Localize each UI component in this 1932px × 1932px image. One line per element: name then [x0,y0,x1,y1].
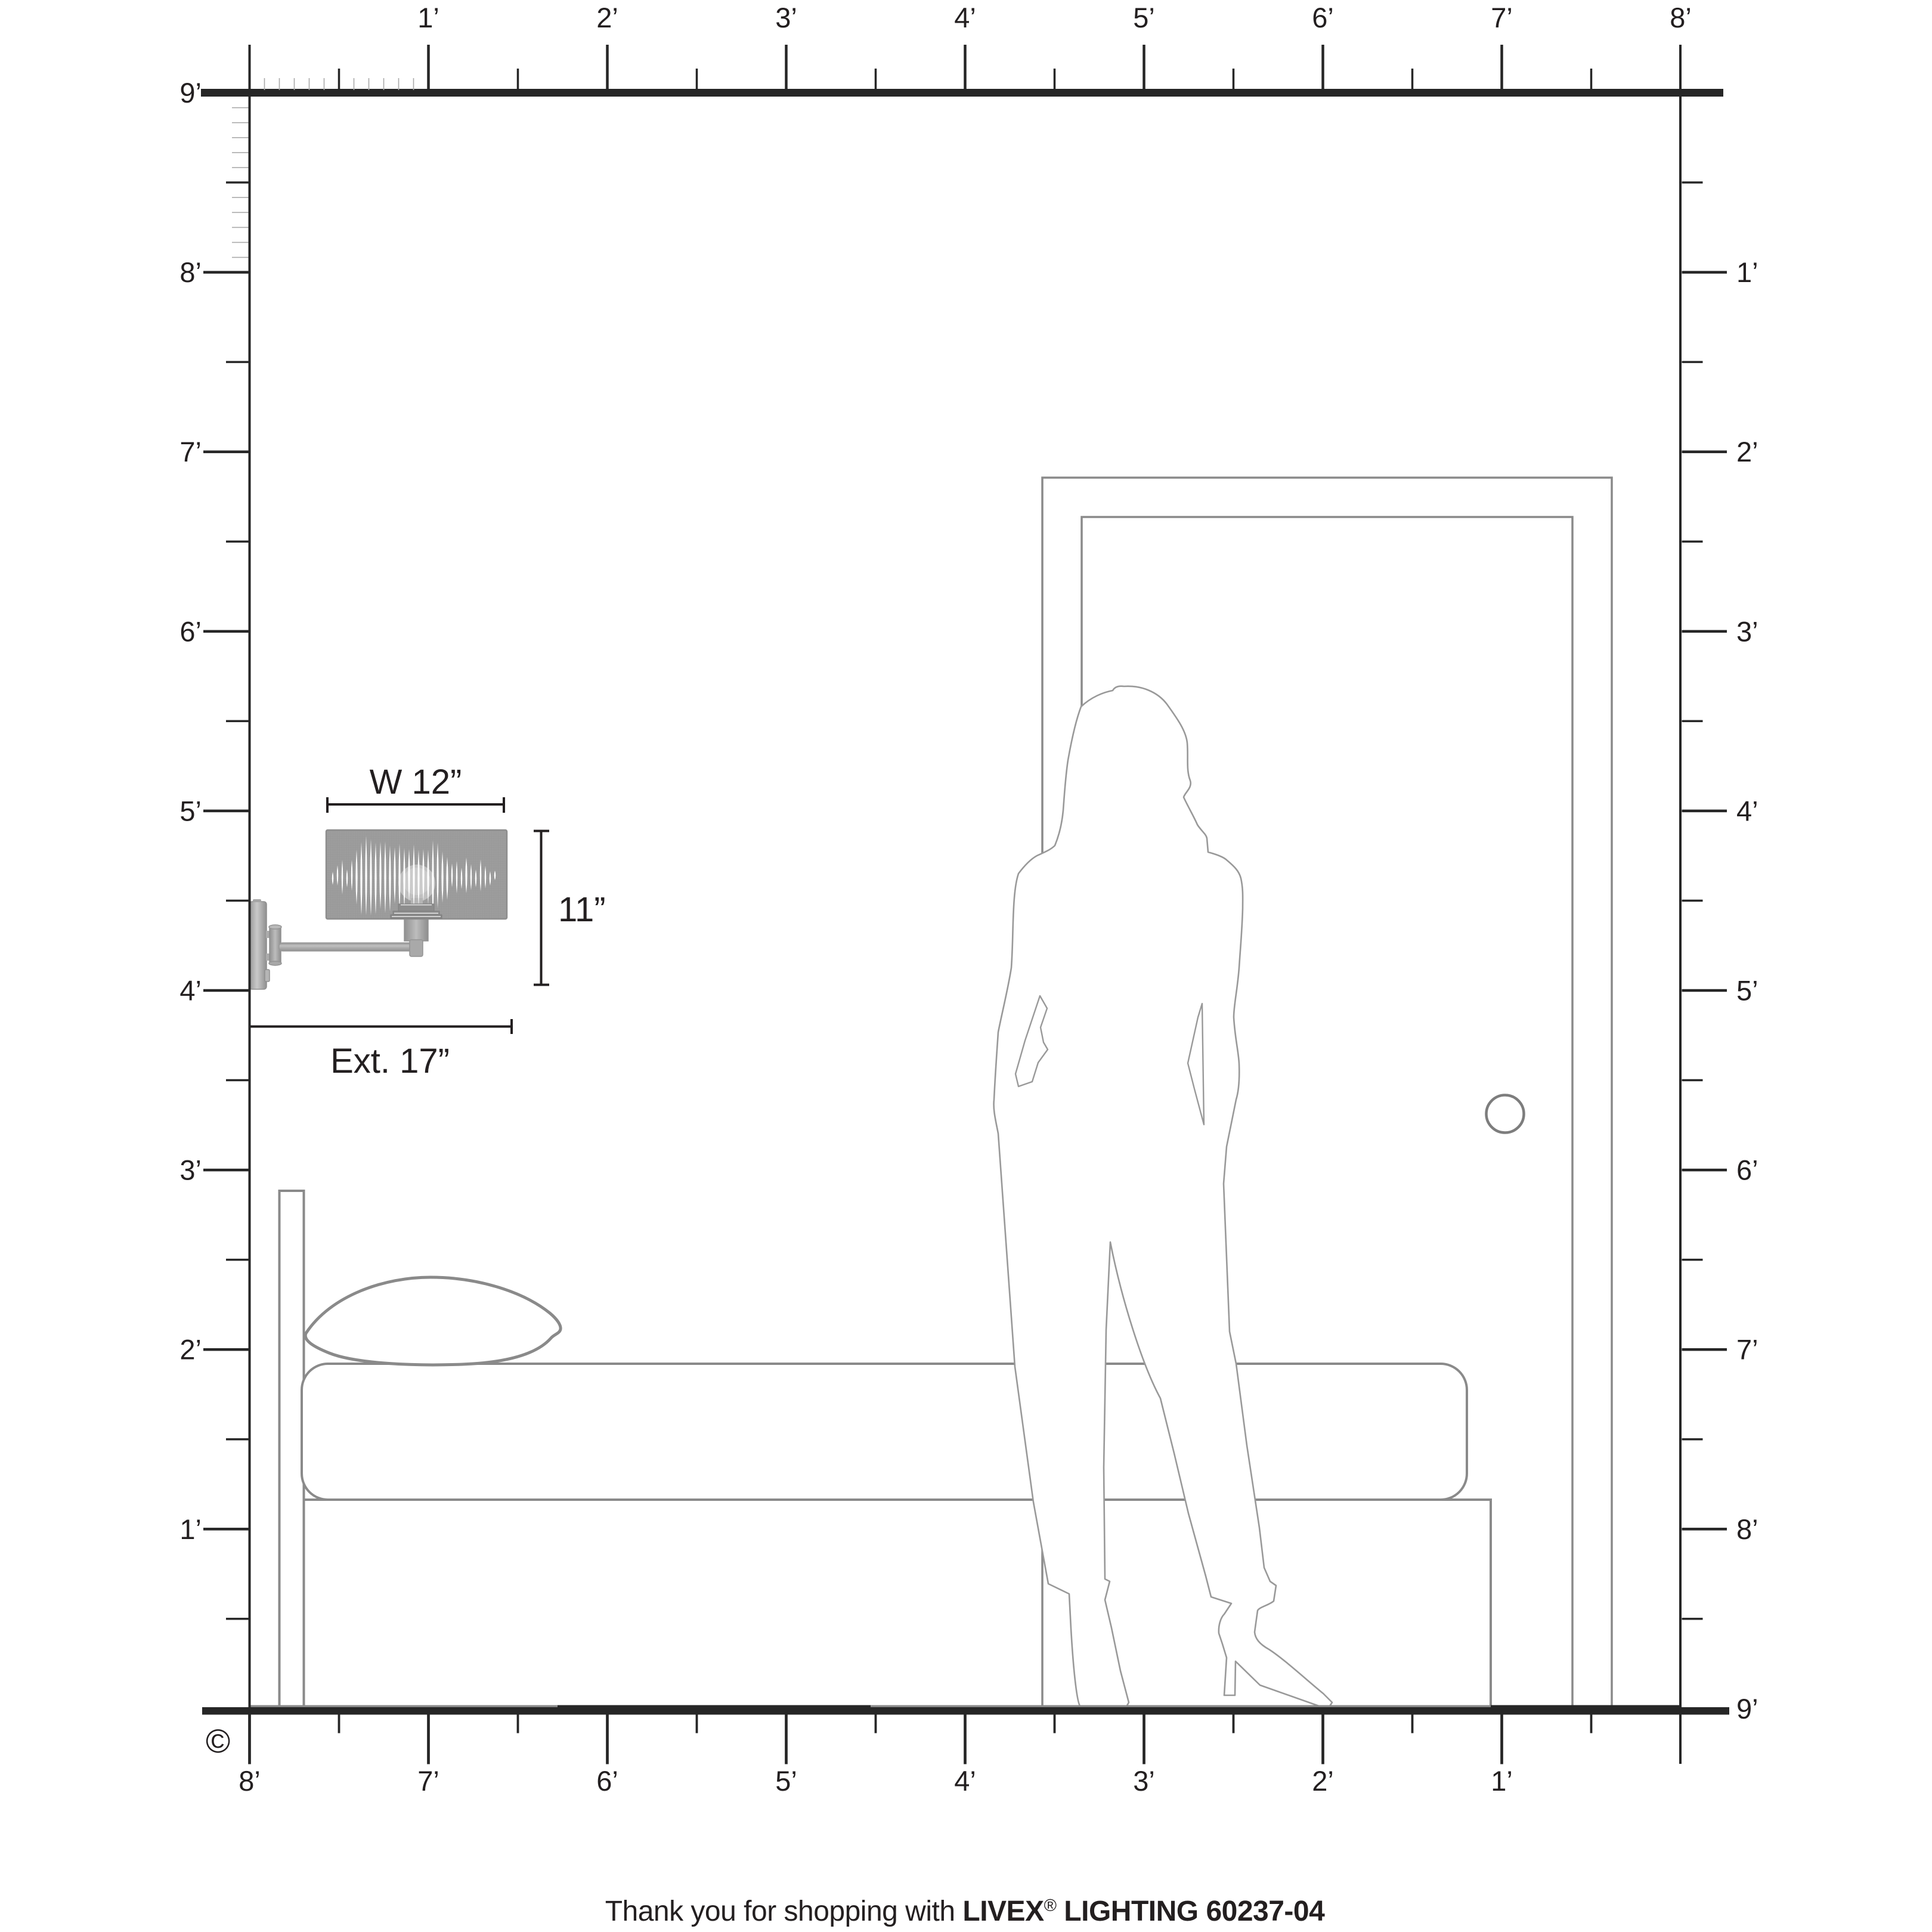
svg-text:©: © [206,1722,230,1760]
svg-text:9’: 9’ [179,77,202,109]
svg-text:Ext. 17”: Ext. 17” [330,1042,450,1080]
svg-text:4’: 4’ [1736,795,1758,826]
svg-text:W 12”: W 12” [370,763,462,801]
svg-text:5’: 5’ [775,1765,797,1797]
svg-text:9’: 9’ [1736,1693,1758,1724]
svg-text:4’: 4’ [954,1765,976,1797]
svg-text:2’: 2’ [596,2,618,33]
svg-text:6’: 6’ [596,1765,618,1797]
svg-text:7’: 7’ [179,436,202,467]
svg-text:7’: 7’ [1736,1334,1758,1366]
svg-text:2’: 2’ [179,1334,202,1366]
svg-text:1’: 1’ [417,2,439,33]
svg-text:6’: 6’ [1312,2,1334,33]
svg-text:3’: 3’ [775,2,797,33]
svg-text:2’: 2’ [1736,436,1758,467]
svg-text:Thank you for shopping with LI: Thank you for shopping with LIVEX® LIGHT… [605,1896,1325,1927]
svg-text:11”: 11” [558,890,606,929]
svg-text:1’: 1’ [179,1513,202,1545]
svg-text:8’: 8’ [179,256,202,288]
svg-text:5’: 5’ [1133,2,1155,33]
svg-text:1’: 1’ [1736,256,1758,288]
svg-text:5’: 5’ [179,795,202,826]
svg-text:4’: 4’ [179,975,202,1007]
svg-text:6’: 6’ [179,615,202,647]
svg-text:7’: 7’ [1491,2,1513,33]
svg-text:3’: 3’ [1736,615,1758,647]
svg-text:3’: 3’ [1133,1765,1155,1797]
svg-text:6’: 6’ [1736,1154,1758,1186]
svg-text:4’: 4’ [954,2,976,33]
svg-text:5’: 5’ [1736,975,1758,1007]
svg-text:1’: 1’ [1491,1765,1513,1797]
svg-text:8’: 8’ [1736,1513,1758,1545]
svg-text:8’: 8’ [239,1765,261,1797]
svg-text:7’: 7’ [417,1765,439,1797]
svg-text:8’: 8’ [1670,2,1692,33]
svg-text:3’: 3’ [179,1154,202,1186]
svg-text:2’: 2’ [1312,1765,1334,1797]
